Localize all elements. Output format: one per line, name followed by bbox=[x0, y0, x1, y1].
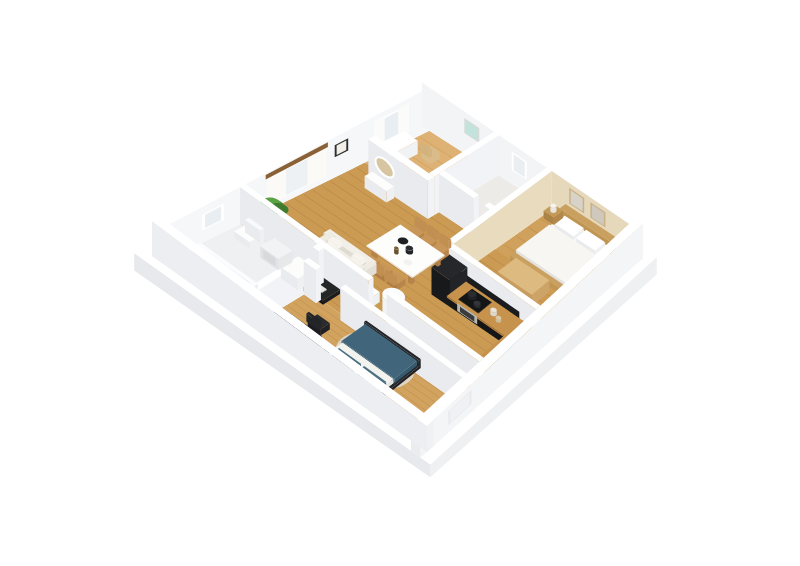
cooktop-pot-1 bbox=[468, 291, 477, 300]
kitchen-canister-1 bbox=[490, 308, 497, 317]
dining-bottle bbox=[394, 246, 399, 254]
kitchen-canister-2 bbox=[496, 316, 502, 323]
floorplan-3d-render bbox=[0, 0, 800, 566]
master-lamp-left bbox=[550, 204, 556, 213]
dining-vase-black bbox=[406, 246, 414, 255]
cooktop-pot-2 bbox=[474, 301, 481, 309]
floorplan-canvas bbox=[0, 0, 800, 566]
